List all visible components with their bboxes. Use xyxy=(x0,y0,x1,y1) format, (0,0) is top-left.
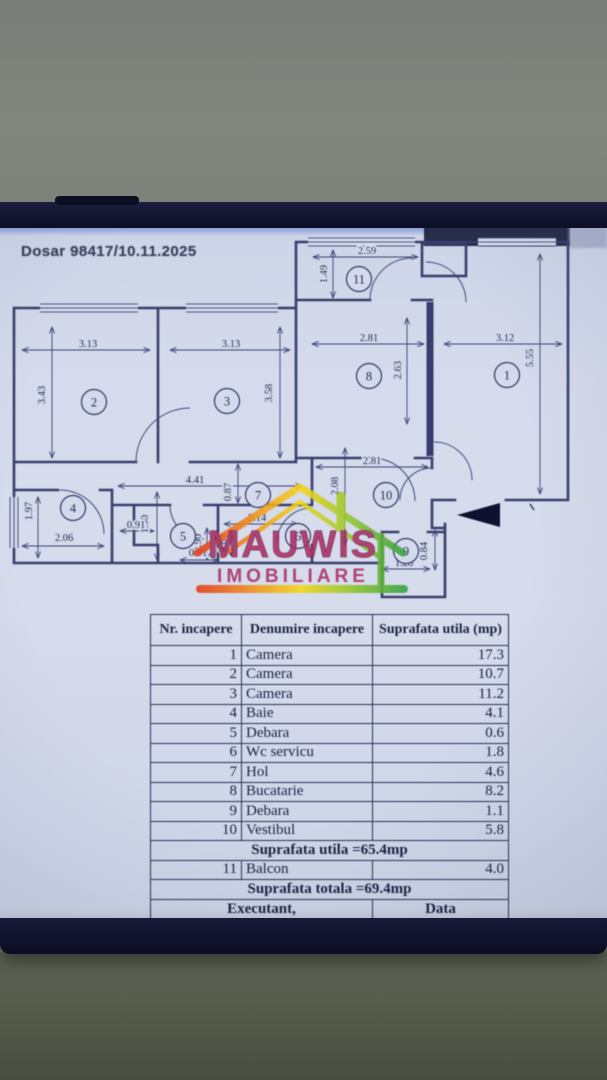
dimension-label: 0.87 xyxy=(223,483,234,501)
dimension-label: 5.55 xyxy=(525,349,536,367)
room-name-cell: Balcon xyxy=(242,860,373,880)
phone-photo-scene: Dosar 98417/10.11.2025 xyxy=(0,0,607,1080)
room-name-cell: Camera xyxy=(242,685,373,705)
table-row: 7Hol4.6 xyxy=(151,763,509,783)
dimension-label: 3.13 xyxy=(79,339,97,350)
room-number-cell: 7 xyxy=(151,763,242,783)
table-row: 5Debara0.6 xyxy=(151,724,509,744)
room-area-cell: 0.6 xyxy=(373,724,509,744)
dimension-label: 3.43 xyxy=(37,386,48,404)
room-area-cell: 17.3 xyxy=(373,646,509,666)
dimension-label: 3.12 xyxy=(496,333,514,344)
watermark-title: MAUWIS xyxy=(208,524,378,566)
table-row: 1Camera17.3 xyxy=(151,646,509,666)
table-row: 8Bucatarie8.2 xyxy=(151,782,509,802)
room-number-label: 1 xyxy=(504,369,510,383)
room-area-cell: 4.0 xyxy=(373,860,509,880)
watermark-subtitle: IMOBILIARE xyxy=(217,566,369,587)
room-number-cell: 8 xyxy=(151,782,242,802)
room-number-cell: 9 xyxy=(151,802,242,822)
room-number-label: 5 xyxy=(180,530,186,544)
room-number-label: 3 xyxy=(224,395,230,409)
room-name-cell: Bucatarie xyxy=(242,782,373,802)
room-number-label: 8 xyxy=(366,370,372,384)
total-row: Suprafata totala =69.4mp xyxy=(151,880,509,900)
table-row: 6Wc servicu1.8 xyxy=(151,743,509,763)
col-header-suprafata: Suprafata utila (mp) xyxy=(373,615,509,646)
dimension-label: 4.41 xyxy=(186,475,204,486)
entrance-tick xyxy=(530,504,534,510)
table-row: 3Camera11.2 xyxy=(151,685,509,705)
table-header-row: Nr. incapere Denumire incapere Suprafata… xyxy=(151,615,509,646)
dimension-label: 2.81 xyxy=(360,333,378,344)
room-name-cell: Camera xyxy=(242,665,373,685)
room-area-cell: 4.6 xyxy=(373,763,509,783)
table-row: 2Camera10.7 xyxy=(151,665,509,685)
dimension-label: 2.81 xyxy=(363,456,381,467)
dimension-label: 3.58 xyxy=(264,384,275,402)
table-row: 10Vestibul5.8 xyxy=(151,821,509,841)
dimension-label: 2.63 xyxy=(393,361,404,379)
room-number-cell: 2 xyxy=(151,665,242,685)
subtotal-row-cell: Suprafata utila =65.4mp xyxy=(151,841,509,861)
room-name-cell: Wc servicu xyxy=(242,743,373,763)
dimension-label: 0.84 xyxy=(419,541,430,560)
table-row: 9Debara1.1 xyxy=(151,802,509,822)
room-number-cell: 11 xyxy=(151,860,242,880)
dimension-label: 2.59 xyxy=(358,246,376,257)
room-name-cell: Baie xyxy=(242,704,373,724)
dimension-label: 1.49 xyxy=(319,265,330,283)
entrance-arrow-icon xyxy=(457,503,500,527)
col-header-denumire: Denumire incapere xyxy=(242,615,373,646)
dimension-label: 2.06 xyxy=(55,533,73,544)
col-header-nr: Nr. incapere xyxy=(151,615,242,646)
room-area-cell: 11.2 xyxy=(373,685,509,705)
room-name-cell: Vestibul xyxy=(242,821,373,841)
room-number-cell: 10 xyxy=(151,821,242,841)
phone-bezel-bottom xyxy=(0,918,607,954)
table-row: 11Balcon4.0 xyxy=(151,860,509,880)
area-table: Nr. incapere Denumire incapere Suprafata… xyxy=(150,614,509,925)
room-area-cell: 10.7 xyxy=(373,665,509,685)
room-area-cell: 5.8 xyxy=(373,821,509,841)
room-number-cell: 4 xyxy=(151,704,242,724)
area-table-wrap: Nr. incapere Denumire incapere Suprafata… xyxy=(150,614,509,925)
wall-block xyxy=(422,244,466,276)
total-row-cell: Suprafata totala =69.4mp xyxy=(151,880,509,900)
phone-bezel-top xyxy=(0,202,607,228)
room-name-cell: Debara xyxy=(242,724,373,744)
room-number-label: 7 xyxy=(255,489,261,503)
room-name-cell: Hol xyxy=(242,763,373,783)
room-number-label: 2 xyxy=(91,396,97,410)
room-area-cell: 8.2 xyxy=(373,782,509,802)
phone-side-button xyxy=(55,196,139,205)
room-number-label: 4 xyxy=(70,502,77,516)
table-row: 4Baie4.1 xyxy=(151,704,509,724)
agency-watermark: MAUWIS IMOBILIARE xyxy=(197,487,404,590)
room-name-cell: Camera xyxy=(242,646,373,666)
room-number-cell: 6 xyxy=(151,743,242,763)
room-area-cell: 1.8 xyxy=(373,743,509,763)
subtotal-row: Suprafata utila =65.4mp xyxy=(151,841,509,861)
dimension-label: 3.13 xyxy=(222,339,240,350)
room-name-cell: Debara xyxy=(242,802,373,822)
room-number-label: 11 xyxy=(353,273,365,287)
dimension-label: 0.91 xyxy=(127,520,145,531)
room-area-cell: 4.1 xyxy=(373,704,509,724)
room-number-label: 10 xyxy=(380,489,393,503)
dimension-label: 1.97 xyxy=(24,502,35,520)
room-number-cell: 3 xyxy=(151,685,242,705)
room-number-cell: 5 xyxy=(151,724,242,744)
room-area-cell: 1.1 xyxy=(373,802,509,822)
room-number-cell: 1 xyxy=(151,646,242,666)
